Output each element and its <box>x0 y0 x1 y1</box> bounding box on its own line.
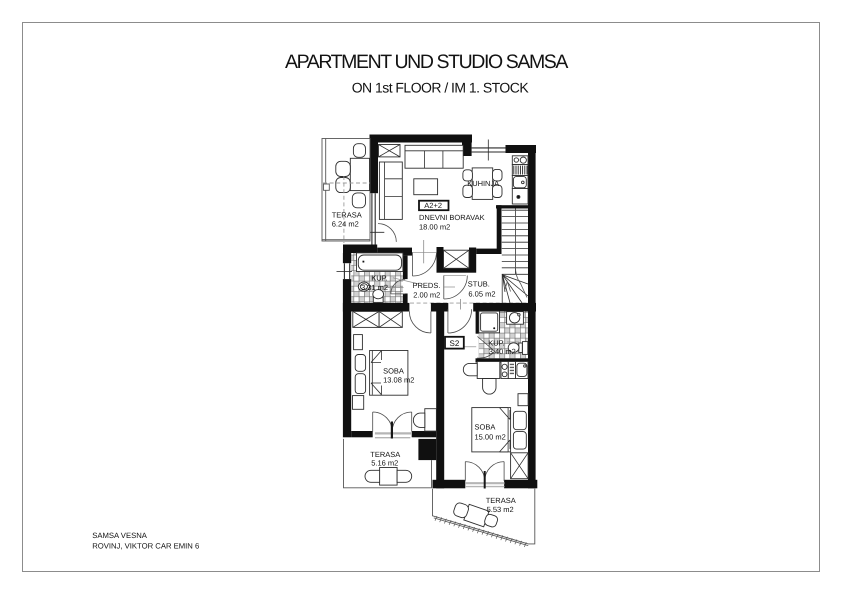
svg-text:A2+2: A2+2 <box>424 201 442 210</box>
svg-text:KUP.: KUP. <box>488 338 505 347</box>
svg-text:ON 1st FLOOR / IM 1. STOCK: ON 1st FLOOR / IM 1. STOCK <box>352 79 530 95</box>
svg-text:TERASA: TERASA <box>486 496 516 505</box>
svg-text:6.05 m2: 6.05 m2 <box>468 289 495 298</box>
svg-text:KUHINJA: KUHINJA <box>467 179 499 188</box>
svg-text:6.24 m2: 6.24 m2 <box>332 220 359 229</box>
svg-text:STUB.: STUB. <box>468 280 490 289</box>
svg-text:SOBA: SOBA <box>383 367 404 376</box>
svg-text:KUP.: KUP. <box>371 274 388 283</box>
svg-text:3.40 m2: 3.40 m2 <box>489 347 516 356</box>
svg-text:SAMSA VESNA: SAMSA VESNA <box>92 531 148 540</box>
svg-text:5.16 m2: 5.16 m2 <box>371 459 398 468</box>
svg-text:13.08 m2: 13.08 m2 <box>383 375 414 384</box>
svg-text:3.31 m2: 3.31 m2 <box>361 283 388 292</box>
svg-text:2.00 m2: 2.00 m2 <box>413 291 440 300</box>
svg-text:18.00 m2: 18.00 m2 <box>419 222 450 231</box>
svg-text:15.00 m2: 15.00 m2 <box>475 433 506 442</box>
svg-text:APARTMENT UND STUDIO SAMSA: APARTMENT UND STUDIO SAMSA <box>285 51 568 73</box>
svg-text:S2: S2 <box>450 339 460 348</box>
svg-text:5.53 m2: 5.53 m2 <box>487 505 514 514</box>
svg-text:DNEVNI BORAVAK: DNEVNI BORAVAK <box>419 213 485 222</box>
svg-text:TERASA: TERASA <box>332 210 362 219</box>
svg-text:PREDS.: PREDS. <box>413 281 441 290</box>
svg-text:ROVINJ, VIKTOR CAR EMIN 6: ROVINJ, VIKTOR CAR EMIN 6 <box>92 541 199 550</box>
svg-text:SOBA: SOBA <box>475 423 496 432</box>
